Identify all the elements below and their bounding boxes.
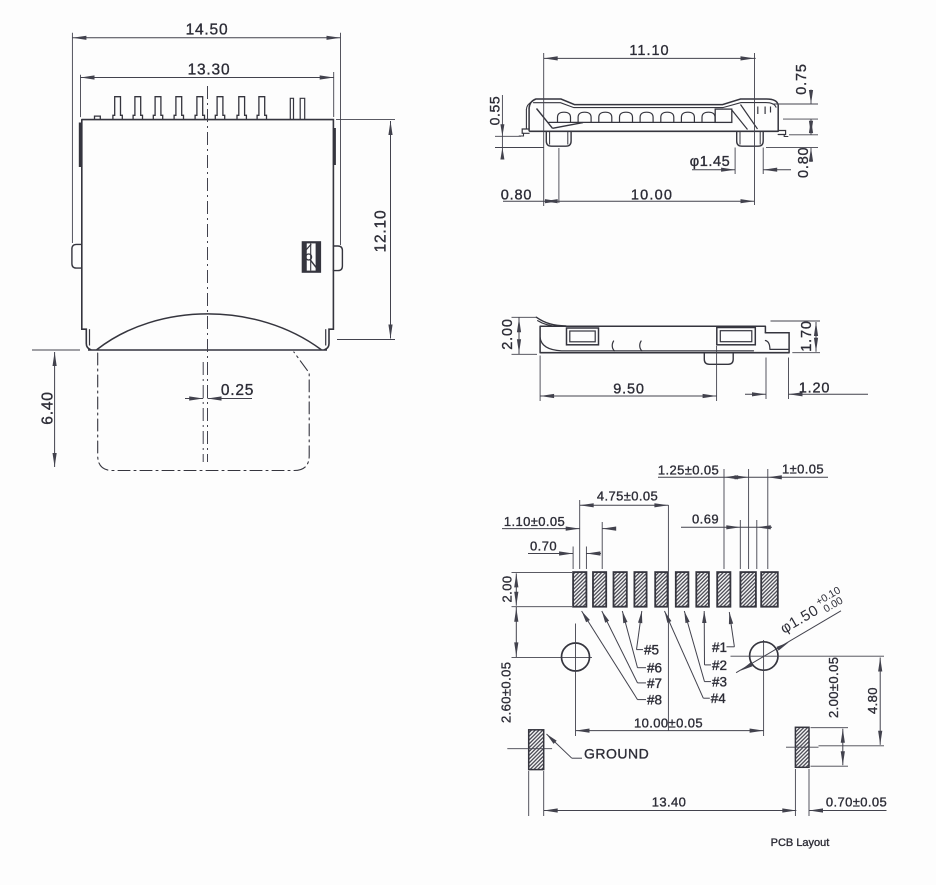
svg-text:2.00: 2.00 bbox=[500, 318, 516, 349]
svg-text:13.40: 13.40 bbox=[652, 795, 687, 810]
svg-text:1.20: 1.20 bbox=[799, 381, 830, 397]
svg-text:1±0.05: 1±0.05 bbox=[782, 462, 824, 477]
svg-text:0.25: 0.25 bbox=[221, 382, 254, 399]
svg-text:4.80: 4.80 bbox=[865, 687, 880, 714]
svg-text:2.60±0.05: 2.60±0.05 bbox=[499, 662, 514, 723]
svg-text:4.75±0.05: 4.75±0.05 bbox=[597, 489, 658, 504]
svg-text:6.40: 6.40 bbox=[40, 391, 57, 424]
svg-text:#1: #1 bbox=[712, 640, 727, 655]
svg-text:#8: #8 bbox=[647, 693, 662, 708]
svg-text:0.80: 0.80 bbox=[796, 147, 812, 178]
svg-text:1.70: 1.70 bbox=[799, 320, 815, 351]
svg-text:#3: #3 bbox=[712, 675, 727, 690]
svg-text:10.00±0.05: 10.00±0.05 bbox=[634, 716, 703, 731]
svg-text:12.10: 12.10 bbox=[373, 210, 390, 253]
svg-text:1.10±0.05: 1.10±0.05 bbox=[504, 514, 565, 529]
svg-text:#7: #7 bbox=[647, 676, 662, 691]
svg-text:0.70±0.05: 0.70±0.05 bbox=[826, 795, 887, 810]
svg-text:#6: #6 bbox=[647, 661, 662, 676]
svg-text:10.00: 10.00 bbox=[631, 188, 673, 204]
svg-text:#5: #5 bbox=[644, 643, 659, 658]
svg-text:0.69: 0.69 bbox=[692, 512, 719, 527]
svg-text:2.00±0.05: 2.00±0.05 bbox=[826, 657, 841, 718]
svg-text:1.25±0.05: 1.25±0.05 bbox=[658, 463, 719, 478]
svg-text:φ1.45: φ1.45 bbox=[690, 154, 731, 170]
svg-text:2.00: 2.00 bbox=[500, 576, 515, 603]
svg-text:#2: #2 bbox=[712, 658, 727, 673]
svg-text:14.50: 14.50 bbox=[186, 22, 229, 39]
svg-text:11.10: 11.10 bbox=[629, 43, 669, 59]
svg-text:0.80: 0.80 bbox=[501, 188, 532, 204]
svg-text:GROUND: GROUND bbox=[584, 746, 649, 762]
svg-text:0.55: 0.55 bbox=[487, 96, 503, 126]
svg-text:#4: #4 bbox=[711, 691, 727, 706]
svg-text:0.75: 0.75 bbox=[794, 63, 810, 94]
svg-text:13.30: 13.30 bbox=[188, 62, 231, 79]
svg-text:0.70: 0.70 bbox=[530, 539, 557, 554]
svg-text:PCB Layout: PCB Layout bbox=[771, 837, 830, 849]
svg-text:9.50: 9.50 bbox=[613, 382, 644, 398]
